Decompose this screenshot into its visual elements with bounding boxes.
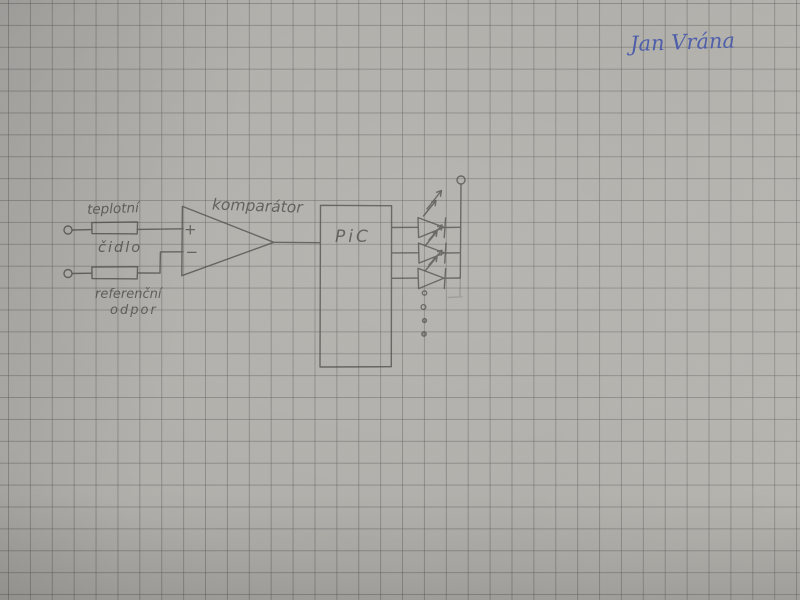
- label-reference-line2: odpor: [110, 303, 158, 318]
- comparator-minus-sign: −: [186, 243, 199, 261]
- dot-3: [423, 319, 427, 323]
- signature-text: Jan Vrána: [626, 28, 736, 56]
- label-sensor-line1: teplotní: [87, 200, 142, 218]
- faint-dash-mark: [448, 297, 462, 298]
- wire-sensor-to-comparator-plus: [138, 229, 184, 230]
- photo-of-paper-sketch: teplotní čidlo referenční odpor komparát…: [0, 0, 800, 600]
- comparator-plus-sign: +: [184, 221, 197, 239]
- label-sensor-line2: čidlo: [98, 240, 142, 256]
- dot-4: [422, 332, 426, 336]
- supply-rail: [460, 184, 461, 278]
- schematic-sketch: teplotní čidlo referenční odpor komparát…: [0, 0, 800, 600]
- label-mcu: PiC: [335, 227, 371, 247]
- label-comparator: komparátor: [212, 196, 305, 217]
- label-reference-line1: referenční: [95, 287, 164, 302]
